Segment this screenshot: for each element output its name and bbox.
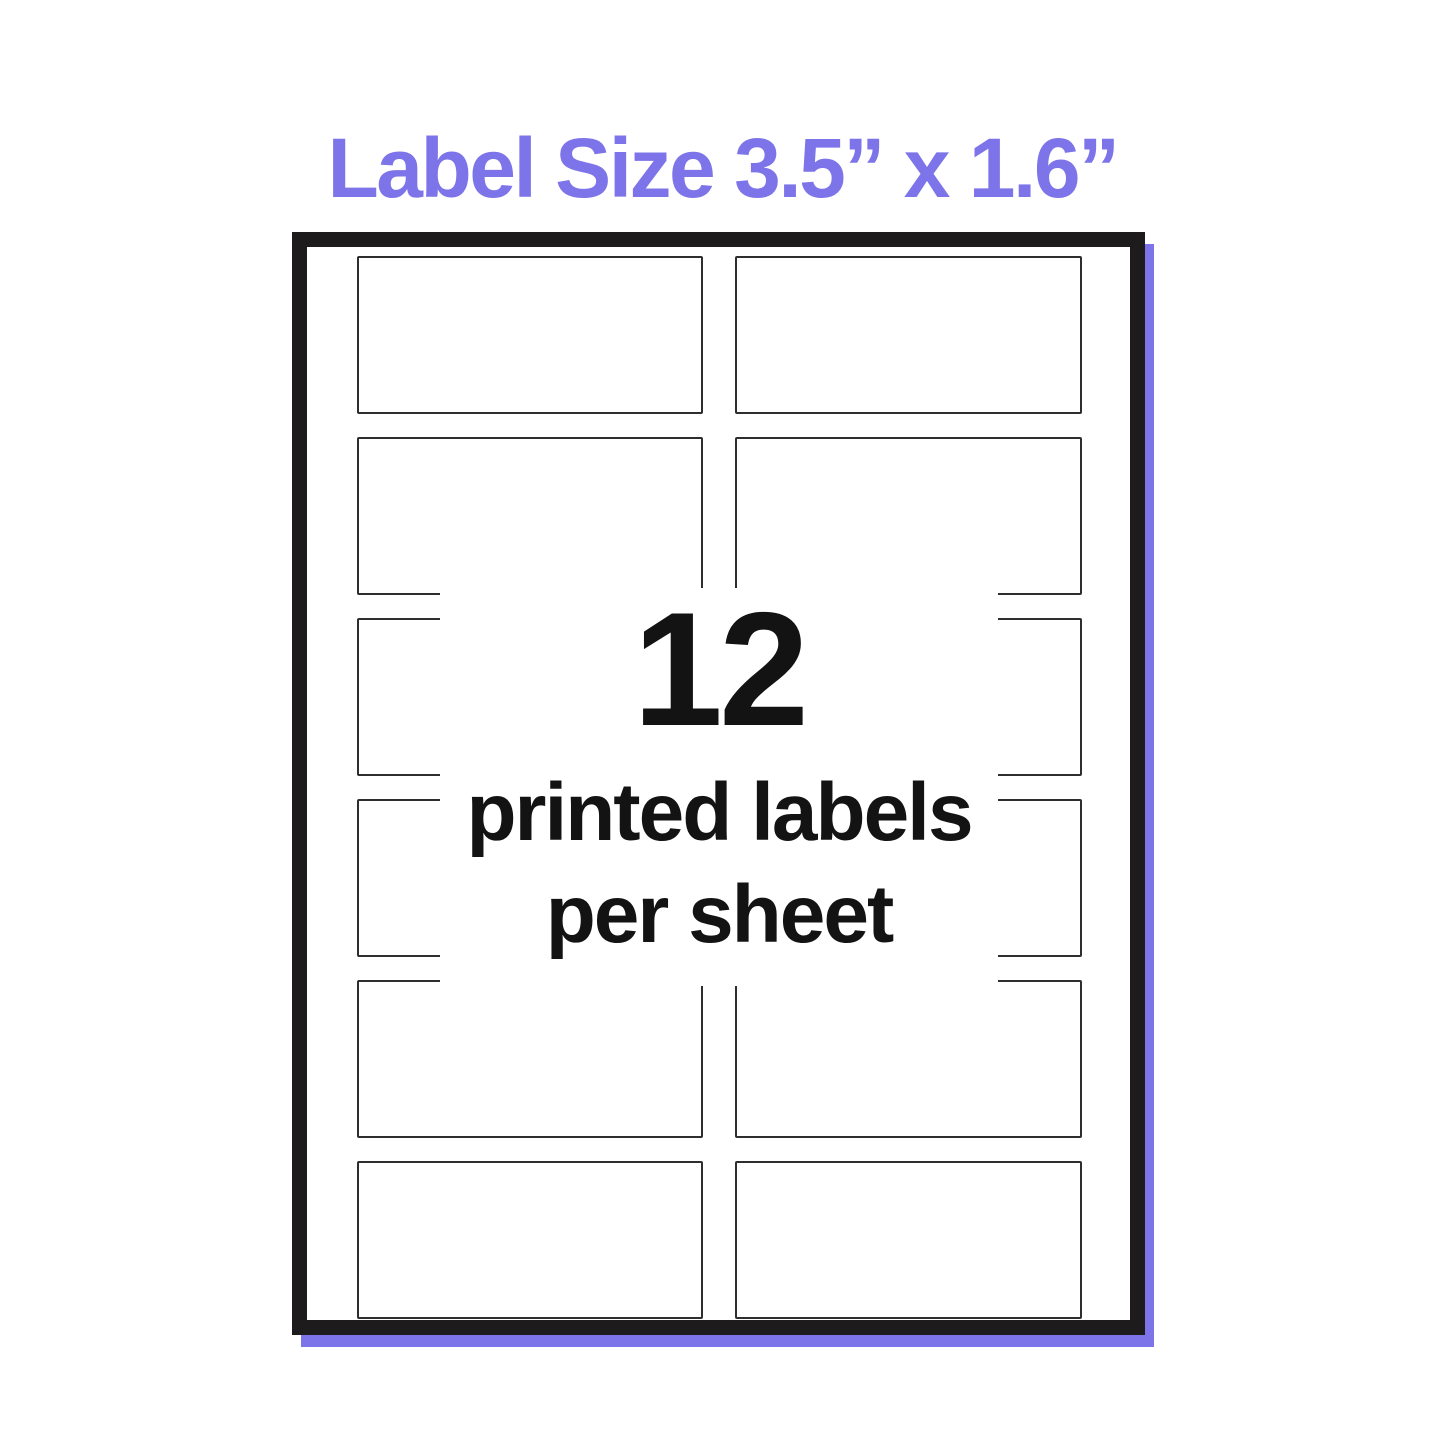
callout-line-2: per sheet bbox=[546, 864, 893, 967]
label-cell bbox=[735, 437, 1082, 595]
label-count: 12 bbox=[633, 607, 805, 733]
label-cell bbox=[357, 1161, 703, 1319]
label-cell bbox=[735, 1161, 1082, 1319]
label-sheet: 12 printed labels per sheet bbox=[292, 232, 1145, 1335]
label-cell bbox=[357, 256, 703, 414]
label-cell bbox=[357, 437, 703, 595]
callout-line-1: printed labels bbox=[466, 762, 971, 865]
product-illustration: Label Size 3.5” x 1.6” 12 printed labels… bbox=[0, 0, 1445, 1445]
labels-per-sheet-callout: 12 printed labels per sheet bbox=[440, 588, 998, 986]
label-cell bbox=[735, 256, 1082, 414]
label-cell bbox=[735, 980, 1082, 1138]
label-size-title: Label Size 3.5” x 1.6” bbox=[0, 126, 1445, 210]
label-cell bbox=[357, 980, 703, 1138]
